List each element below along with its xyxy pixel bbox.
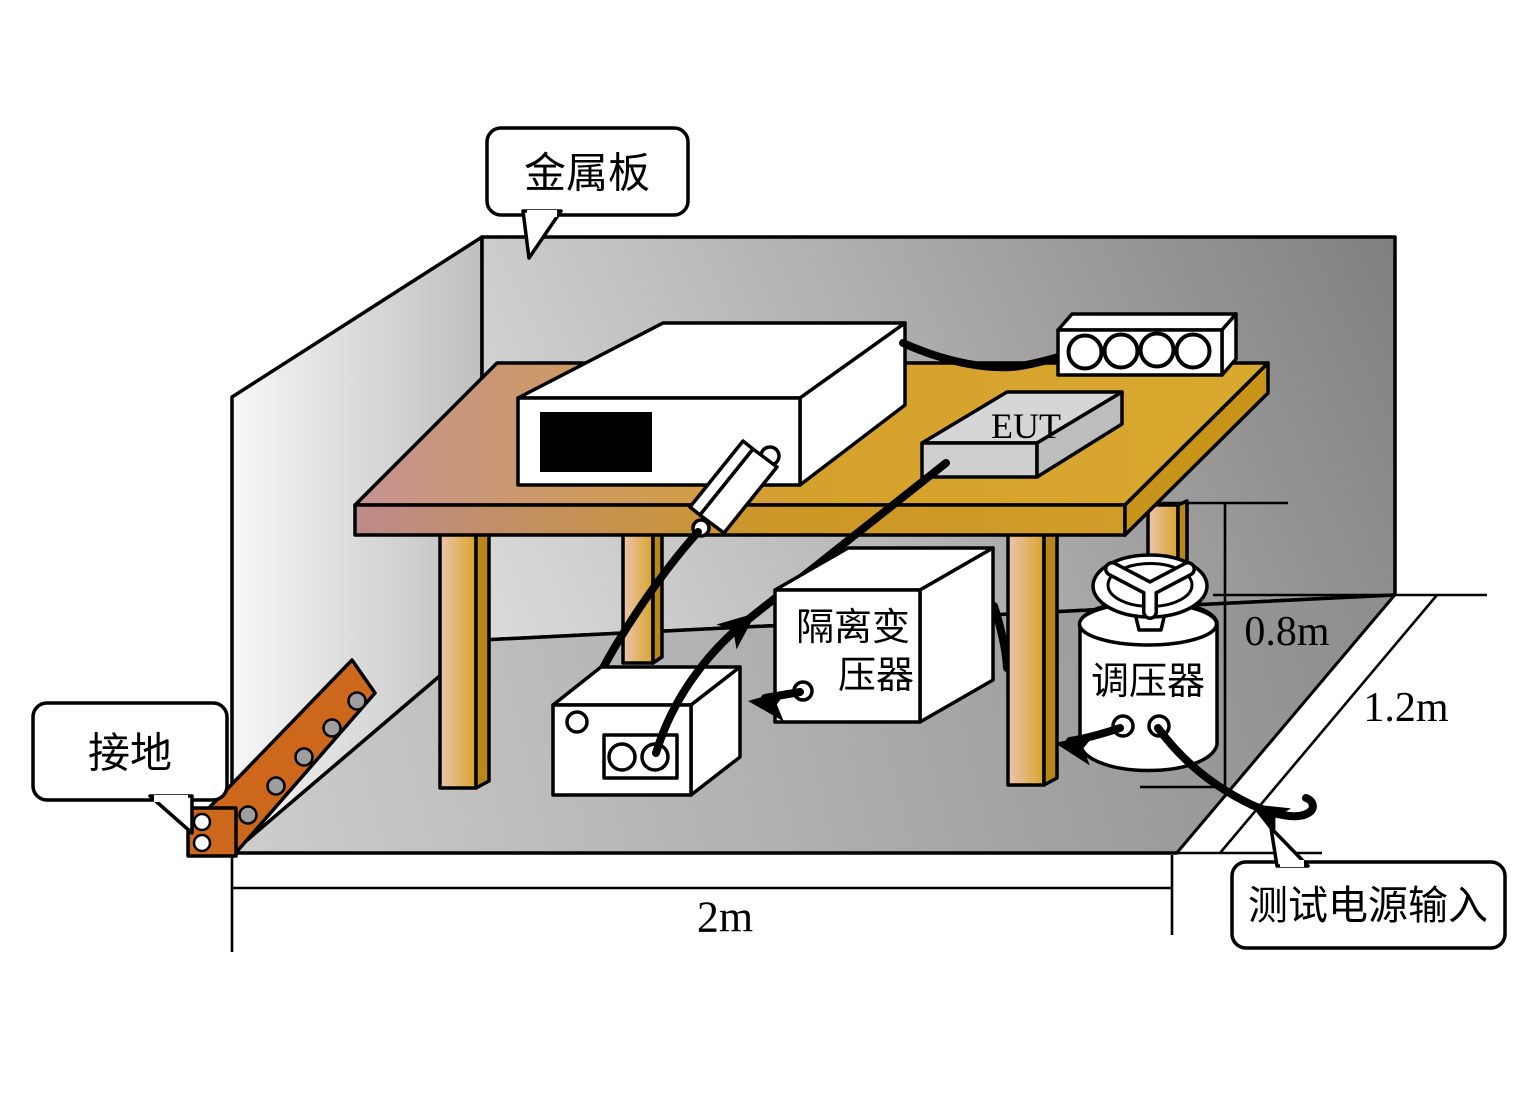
instrument-screen	[540, 412, 652, 472]
eut-label: EUT	[991, 406, 1061, 446]
table-leg-front-right	[1008, 523, 1057, 785]
table-leg-front-left	[440, 523, 489, 788]
metal-plate-label: 金属板	[524, 150, 650, 197]
table-height-label: 0.8m	[1244, 609, 1330, 655]
diagram-canvas: 2m 0.8m 1.2m	[0, 0, 1528, 1111]
coupler-outlet-left	[609, 744, 635, 770]
table-depth-label: 1.2m	[1363, 685, 1449, 731]
table-leg-back-left	[623, 524, 662, 663]
isolation-transformer: 隔离变 压器	[775, 548, 993, 722]
regulator-label: 调压器	[1091, 661, 1205, 703]
coupler-input-port	[567, 712, 587, 732]
table-width-label: 2m	[697, 893, 753, 942]
coupler-box	[553, 667, 740, 795]
powerstrip-top-face	[1058, 314, 1236, 330]
grounding-label: 接地	[88, 730, 172, 777]
transformer-label-line2: 压器	[838, 655, 914, 697]
callout-test-power-input: 测试电源输入	[1232, 828, 1505, 948]
strap-bolt-hole	[194, 835, 210, 851]
strap-bolt-hole	[194, 814, 210, 830]
test-power-input-label: 测试电源输入	[1248, 884, 1488, 928]
power-strip	[1058, 314, 1236, 375]
transformer-label-line1: 隔离变	[796, 607, 910, 649]
test-setup-diagram: 2m 0.8m 1.2m	[0, 0, 1528, 1111]
regulator-handwheel	[1093, 555, 1207, 617]
